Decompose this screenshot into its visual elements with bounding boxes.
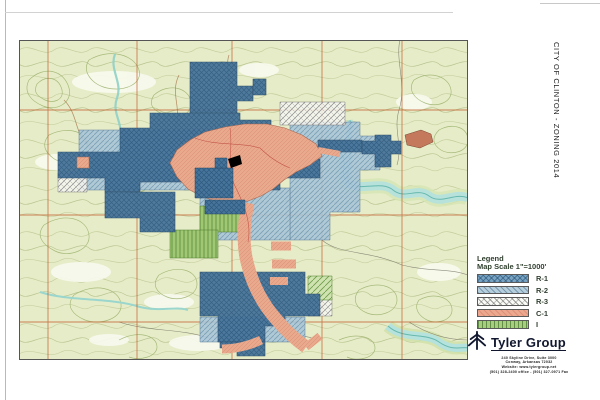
scan-edge-line: [5, 12, 453, 13]
legend-map-scale: Map Scale 1"=1000': [477, 263, 595, 271]
legend-swatch-i: [477, 320, 529, 329]
company-name: Tyler Group: [491, 335, 566, 351]
legend-row-r2: R-2: [477, 286, 595, 295]
legend-swatch-r2: [477, 286, 529, 295]
scanned-zoning-map-page: CITY OF CLINTON - ZONING 2014 Legend Map…: [0, 0, 600, 400]
legend-row-i: I: [477, 320, 595, 329]
legend-label: I: [536, 320, 538, 329]
tyler-group-tree-icon: [466, 330, 488, 355]
scan-edge-line: [5, 0, 6, 400]
tyler-group-logo-block: Tyler Group 240 Skyline Drive, Suite 300…: [466, 330, 592, 374]
legend-swatch-r1: [477, 274, 529, 283]
legend-row-c1: C-1: [477, 309, 595, 318]
zoning-map-canvas: [19, 40, 468, 360]
legend-label: R-3: [536, 297, 548, 306]
company-address-line: Conway, Arkansas 72032: [466, 361, 592, 364]
legend-row-r1: R-1: [477, 274, 595, 283]
legend-row-r3: R-3: [477, 297, 595, 306]
company-address-line: Website: www.tylergroup.net: [466, 366, 592, 369]
scan-edge-line: [540, 3, 600, 4]
legend-swatch-c1: [477, 309, 529, 318]
legend-label: C-1: [536, 309, 548, 318]
company-address-line: (501) 328-2400 office - (501) 327-0971 F…: [466, 371, 592, 374]
legend-swatch-r3: [477, 297, 529, 306]
legend: Legend Map Scale 1"=1000' R-1 R-2 R-3 C-…: [477, 255, 595, 329]
legend-label: R-1: [536, 274, 548, 283]
map-title: CITY OF CLINTON - ZONING 2014: [552, 42, 561, 192]
legend-label: R-2: [536, 286, 548, 295]
